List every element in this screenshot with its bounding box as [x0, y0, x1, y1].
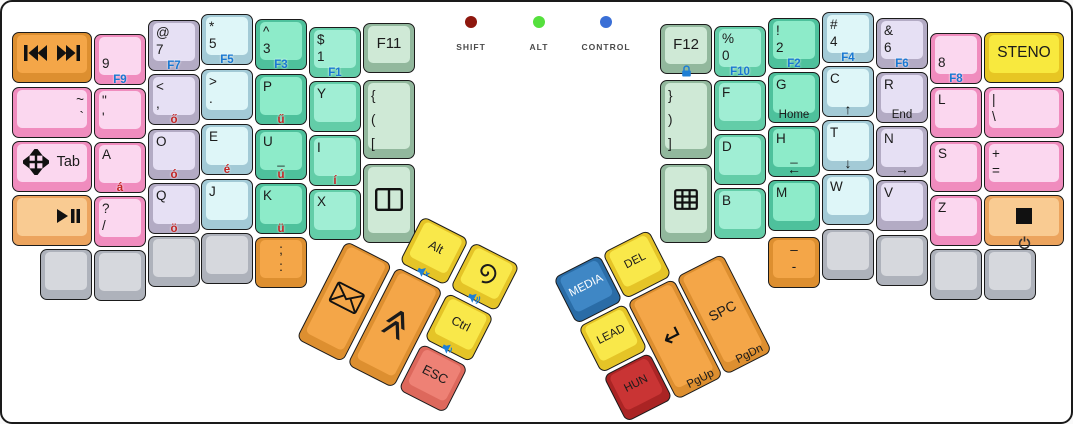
- key-8[interactable]: 8F8: [930, 33, 982, 84]
- key-o-accent-label: ó: [149, 169, 199, 181]
- key-b[interactable]: B: [714, 188, 766, 239]
- key-amp-6[interactable]: &6F6: [876, 18, 928, 69]
- enter-icon: ↵: [657, 319, 688, 352]
- key-a-legends: A: [102, 146, 138, 163]
- key-p-accent-label: ű: [256, 114, 306, 126]
- key-u-accent-label: ú: [256, 169, 306, 181]
- key-w-legends: W: [830, 178, 866, 195]
- key-semicolon-colon-legends: ;:: [263, 241, 299, 275]
- key-gt-period-legends: >.: [209, 73, 245, 107]
- key-stop-power[interactable]: [984, 195, 1064, 246]
- key-tab-iconwrap: [13, 142, 91, 182]
- key-a[interactable]: Aá: [94, 142, 146, 193]
- key-k-accent-label: ü: [256, 223, 306, 235]
- key-e-legends: E: [209, 128, 245, 145]
- key-blank-r1[interactable]: [822, 229, 874, 280]
- key-blank-r3[interactable]: [930, 249, 982, 300]
- key-v[interactable]: V: [876, 180, 928, 231]
- key-lt-comma-accent-label: ő: [149, 114, 199, 126]
- key-blank-l1-face: [45, 252, 87, 290]
- key-f-legends: F: [722, 84, 758, 101]
- key-y[interactable]: Y: [309, 81, 361, 132]
- key-y-legends: Y: [317, 85, 353, 102]
- control-indicator-dot: [600, 16, 612, 28]
- key-m-legends: M: [776, 184, 812, 201]
- key-gt-period[interactable]: >.: [201, 69, 253, 120]
- key-close-brackets-legends: })]: [668, 84, 704, 156]
- key-tilde-backtick[interactable]: ~`: [12, 87, 92, 138]
- key-v-legends: V: [884, 184, 920, 201]
- key-star-5-fn-label: F5: [202, 54, 252, 66]
- chevrons-up-icon: ≫: [377, 303, 418, 345]
- key-u-legends: U: [263, 133, 299, 150]
- key-8-fn-label: F8: [931, 73, 981, 85]
- key-f12-iconwrap: [661, 65, 711, 77]
- lock-icon: [681, 65, 692, 77]
- alt-indicator-dot: [533, 16, 545, 28]
- key-q[interactable]: Qö: [148, 183, 200, 234]
- key-9-legends: 9: [102, 38, 138, 72]
- alt-indicator-label: ALT: [530, 42, 549, 52]
- key-dash[interactable]: –-: [768, 237, 820, 288]
- key-q-legends: Q: [156, 187, 192, 204]
- key-d-legends: D: [722, 138, 758, 155]
- key-pct-0-fn-label: F10: [715, 66, 765, 78]
- key-u-homing-bar: _: [256, 152, 306, 167]
- key-j-legends: J: [209, 183, 245, 200]
- power-icon: [1018, 236, 1031, 249]
- key-lt-comma[interactable]: <,ő: [148, 74, 200, 125]
- key-f12-label: F12: [661, 25, 711, 64]
- key-l[interactable]: L: [930, 87, 982, 138]
- key-blank-r1-face: [827, 232, 869, 270]
- key-u[interactable]: Uú_: [255, 129, 307, 180]
- key-steno-label: STENO: [985, 33, 1063, 73]
- key-semicolon-colon[interactable]: ;:: [255, 237, 307, 288]
- key-q-accent-label: ö: [149, 223, 199, 235]
- key-c[interactable]: C↑: [822, 66, 874, 117]
- key-g-sub-label: Home: [769, 109, 819, 121]
- key-w[interactable]: W: [822, 174, 874, 225]
- key-media-prev-next[interactable]: [12, 32, 92, 83]
- key-n-legends: N: [884, 130, 920, 147]
- key-pipe-backslash[interactable]: |\: [984, 87, 1064, 138]
- key-pct-0[interactable]: %0F10: [714, 26, 766, 77]
- key-open-brackets[interactable]: {([: [363, 80, 415, 159]
- key-at-7-fn-label: F7: [149, 60, 199, 72]
- key-quote[interactable]: "': [94, 88, 146, 139]
- key-hash-4-legends: #4: [830, 16, 866, 50]
- key-plus-equals[interactable]: +=: [984, 141, 1064, 192]
- key-steno[interactable]: STENO: [984, 32, 1064, 83]
- key-c-arrow-icon: ↑: [823, 101, 873, 117]
- key-f[interactable]: F: [714, 80, 766, 131]
- key-excl-2-legends: !2: [776, 22, 812, 56]
- key-grid-iconwrap: [661, 165, 711, 233]
- key-k-legends: K: [263, 187, 299, 204]
- key-r-sub-label: End: [877, 109, 927, 121]
- key-dollar-1-legends: $1: [317, 31, 353, 65]
- key-caret-3-fn-label: F3: [256, 59, 306, 71]
- key-o-legends: O: [156, 133, 192, 150]
- key-question-slash-legends: ?/: [102, 200, 138, 234]
- key-i-legends: I: [317, 139, 353, 156]
- key-b-legends: B: [722, 192, 758, 209]
- key-blank-r3-face: [935, 252, 977, 290]
- shift-indicator-label: SHIFT: [456, 42, 486, 52]
- key-s-legends: S: [938, 145, 974, 162]
- window-split-icon: [375, 188, 403, 211]
- key-star-5[interactable]: *5F5: [201, 14, 253, 65]
- play-pause-icon: [56, 208, 81, 224]
- key-t-legends: T: [830, 124, 866, 141]
- key-caret-3[interactable]: ^3F3: [255, 19, 307, 70]
- key-excl-2-fn-label: F2: [769, 58, 819, 70]
- key-hash-4-fn-label: F4: [823, 52, 873, 64]
- key-s[interactable]: S: [930, 141, 982, 192]
- key-plus-equals-legends: +=: [992, 145, 1056, 179]
- key-media-prev-next-iconwrap: [13, 33, 91, 73]
- grid-icon: [674, 189, 698, 210]
- key-z[interactable]: Z: [930, 195, 982, 246]
- key-i-accent-label: í: [310, 175, 360, 187]
- key-lt-comma-legends: <,: [156, 78, 192, 112]
- key-a-accent-label: á: [95, 182, 145, 194]
- key-dollar-1-fn-label: F1: [310, 67, 360, 79]
- key-excl-2[interactable]: !2F2: [768, 18, 820, 69]
- key-stop-power-iconwrap: [985, 196, 1063, 236]
- key-f11-label: F11: [364, 24, 414, 63]
- key-t-arrow-icon: ↓: [823, 155, 873, 171]
- key-caret-3-legends: ^3: [263, 23, 299, 57]
- key-m[interactable]: M: [768, 180, 820, 231]
- key-n[interactable]: N→: [876, 126, 928, 177]
- key-9[interactable]: 9F9: [94, 34, 146, 85]
- key-blank-r2[interactable]: [876, 235, 928, 286]
- key-f11[interactable]: F11: [363, 23, 415, 73]
- key-blank-r2-face: [881, 238, 923, 276]
- key-l-legends: L: [938, 91, 974, 108]
- spiral-icon: [469, 255, 504, 290]
- stop-icon: [1016, 208, 1032, 224]
- key-blank-l3-face: [153, 239, 195, 277]
- key-j[interactable]: J: [201, 179, 253, 230]
- key-blank-l1[interactable]: [40, 249, 92, 300]
- key-x[interactable]: X: [309, 189, 361, 240]
- key-play-pause[interactable]: [12, 195, 92, 246]
- key-g-legends: G: [776, 76, 812, 93]
- key-h[interactable]: H←_: [768, 126, 820, 177]
- mail-icon: [327, 280, 365, 315]
- key-blank-l4[interactable]: [201, 233, 253, 284]
- key-tab[interactable]: Tab: [12, 141, 92, 192]
- key-star-5-legends: *5: [209, 18, 245, 52]
- key-i[interactable]: Ií: [309, 135, 361, 186]
- key-9-fn-label: F9: [95, 74, 145, 86]
- key-e[interactable]: Eé: [201, 124, 253, 175]
- key-8-legends: 8: [938, 37, 974, 71]
- key-dash-legends: –-: [776, 241, 812, 275]
- move-icon: [23, 149, 49, 175]
- key-p-legends: P: [263, 78, 299, 95]
- key-grid[interactable]: [660, 164, 712, 243]
- key-p[interactable]: Pű: [255, 74, 307, 125]
- key-question-slash[interactable]: ?/: [94, 196, 146, 247]
- key-blank-l2[interactable]: [94, 250, 146, 301]
- key-at-7[interactable]: @7F7: [148, 20, 200, 71]
- prev-next-track-icon: [23, 44, 81, 62]
- key-dollar-1[interactable]: $1F1: [309, 27, 361, 78]
- key-h-homing-bar: _: [769, 149, 819, 164]
- key-blank-l4-face: [206, 236, 248, 274]
- key-o[interactable]: Oó: [148, 129, 200, 180]
- key-play-pause-iconwrap: [13, 196, 91, 236]
- key-c-legends: C: [830, 70, 866, 87]
- key-x-legends: X: [317, 193, 353, 210]
- key-stop-power-iconwrap: [985, 236, 1063, 249]
- shift-indicator-dot: [465, 16, 477, 28]
- key-z-legends: Z: [938, 199, 974, 216]
- key-blank-r4-face: [989, 252, 1031, 290]
- key-at-7-legends: @7: [156, 24, 192, 58]
- key-amp-6-legends: &6: [884, 22, 920, 56]
- key-pct-0-legends: %0: [722, 30, 758, 64]
- key-window-split[interactable]: [363, 164, 415, 243]
- key-close-brackets[interactable]: })]: [660, 80, 712, 159]
- key-e-accent-label: é: [202, 164, 252, 176]
- key-g[interactable]: GHome: [768, 72, 820, 123]
- key-blank-r4[interactable]: [984, 249, 1036, 300]
- key-n-arrow-icon: →: [877, 161, 927, 177]
- key-amp-6-fn-label: F6: [877, 58, 927, 70]
- key-r[interactable]: REnd: [876, 72, 928, 123]
- key-tilde-backtick-legends: ~`: [20, 91, 84, 125]
- key-hash-4[interactable]: #4F4: [822, 12, 874, 63]
- key-window-split-iconwrap: [364, 165, 414, 233]
- key-h-legends: H: [776, 130, 812, 147]
- key-t[interactable]: T↓: [822, 120, 874, 171]
- key-d[interactable]: D: [714, 134, 766, 185]
- key-quote-legends: "': [102, 92, 138, 126]
- key-open-brackets-legends: {([: [371, 84, 407, 156]
- key-r-legends: R: [884, 76, 920, 93]
- key-k[interactable]: Kü: [255, 183, 307, 234]
- key-blank-l3[interactable]: [148, 236, 200, 287]
- key-pipe-backslash-legends: |\: [992, 91, 1056, 125]
- keyboard-layout-canvas: ~`Tab 9F9"'Aá?/@7F7<,őOóQö*5F5>.EéJ^3F3P…: [0, 0, 1073, 424]
- key-f12[interactable]: F12: [660, 24, 712, 74]
- key-blank-l2-face: [99, 253, 141, 291]
- control-indicator-label: CONTROL: [581, 42, 630, 52]
